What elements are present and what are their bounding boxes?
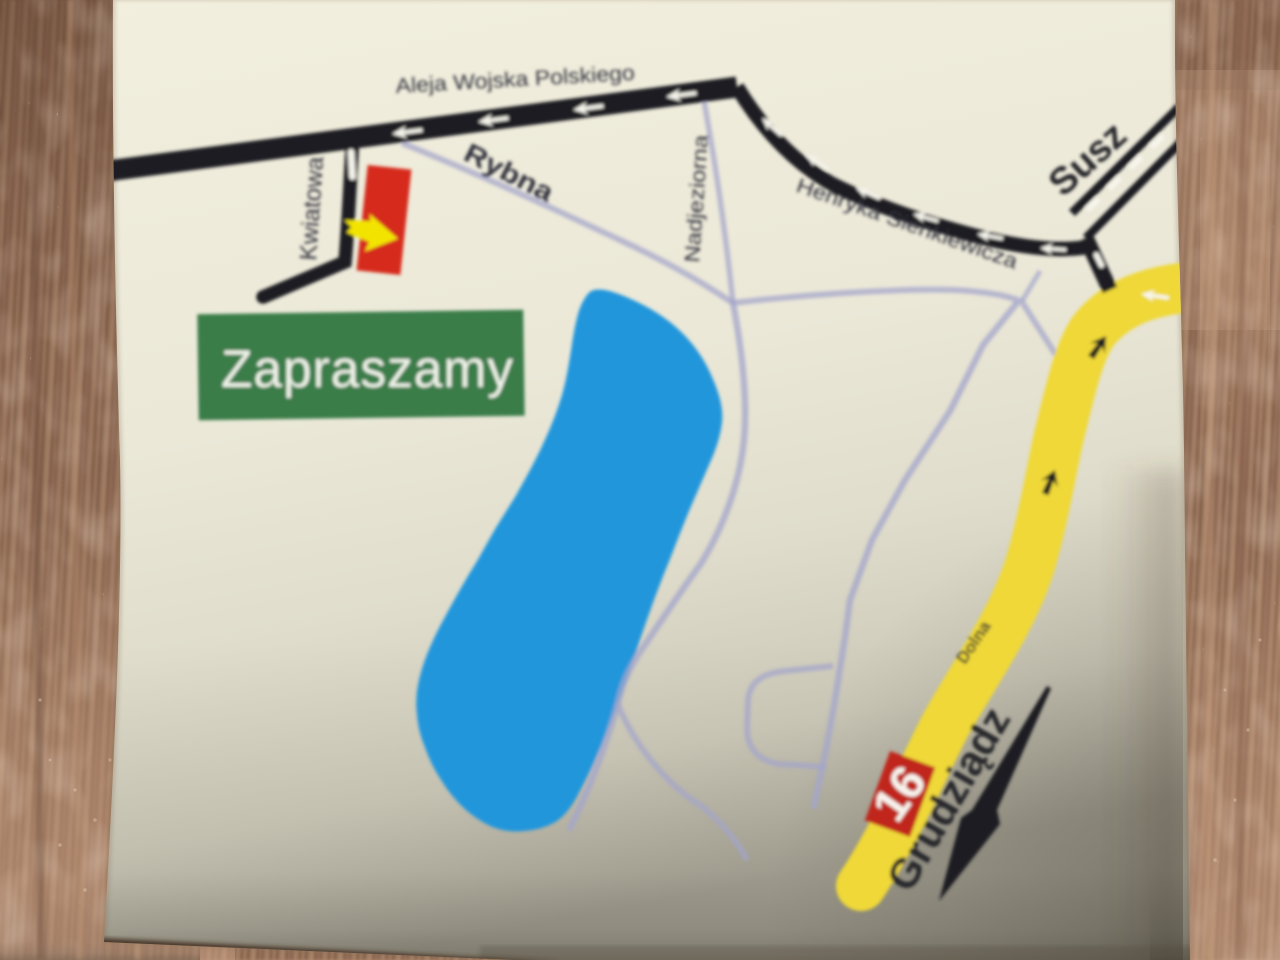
- svg-text:Zapraszamy: Zapraszamy: [221, 340, 514, 399]
